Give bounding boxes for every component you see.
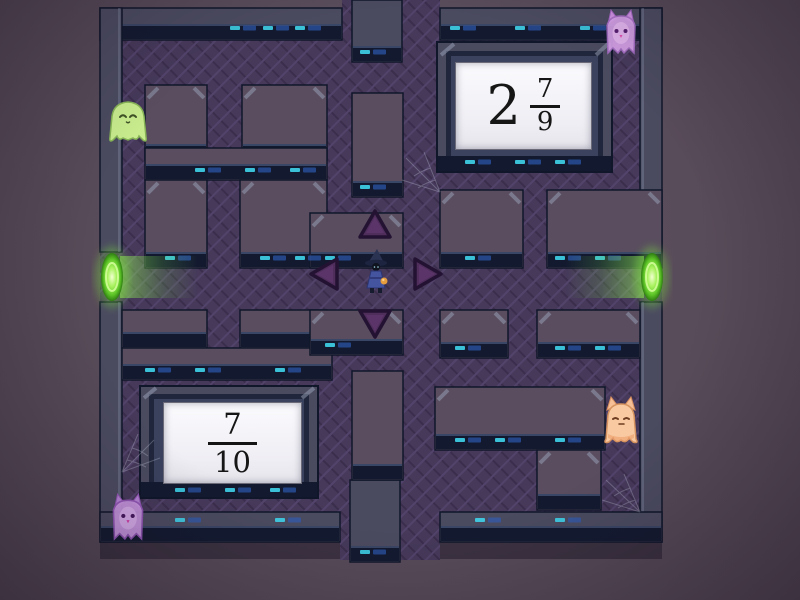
ghost-orange [600, 394, 642, 446]
up-arrow-icon [355, 206, 395, 242]
answer-fraction: 7 9 [530, 75, 561, 138]
ghost-pink [602, 8, 640, 56]
move-left-button[interactable] [306, 254, 342, 298]
answer-numerator: 7 [208, 407, 256, 445]
right-arrow-icon [410, 254, 446, 294]
answer-fraction: 7 10 [199, 407, 266, 480]
game-stage: 2 7 9 7 10 [0, 0, 800, 600]
answer-denominator: 9 [530, 108, 561, 138]
player-wizard [361, 248, 391, 296]
answer-numerator: 7 [530, 75, 561, 108]
move-down-button[interactable] [355, 306, 395, 346]
answer-card-top-right: 2 7 9 [455, 62, 592, 150]
down-arrow-icon [355, 306, 395, 342]
answer-whole-number: 2 [487, 79, 521, 133]
answer-denominator: 10 [199, 445, 266, 480]
ghost-green [108, 97, 148, 143]
left-arrow-icon [306, 254, 342, 294]
answer-card-bottom-left: 7 10 [163, 402, 302, 484]
move-right-button[interactable] [410, 254, 446, 298]
ghost-purple [108, 492, 148, 542]
move-up-button[interactable] [355, 206, 395, 246]
